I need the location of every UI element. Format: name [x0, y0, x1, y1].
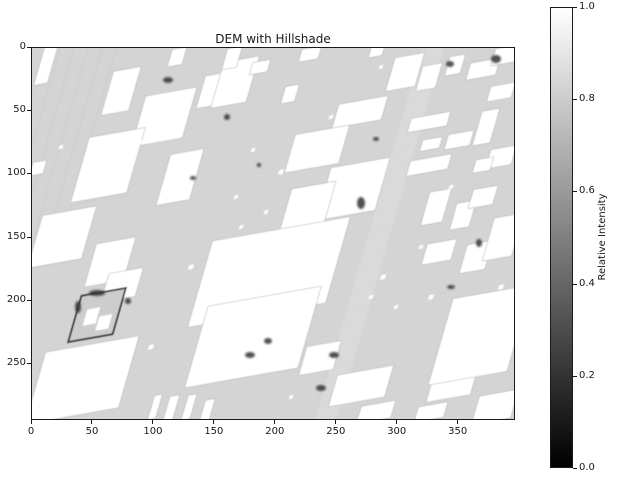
y-tick-label: 0 [0, 41, 26, 53]
y-tick-mark [27, 173, 31, 174]
x-tick-mark [152, 420, 153, 424]
y-tick-mark [27, 110, 31, 111]
hillshade-image [31, 47, 515, 420]
colorbar-tick-label: 0.0 [579, 462, 609, 474]
colorbar-tick-label: 0.8 [579, 93, 609, 105]
x-tick-mark [91, 420, 92, 424]
y-tick-label: 250 [0, 357, 26, 369]
colorbar-tick-mark [573, 468, 577, 469]
x-tick-mark [274, 420, 275, 424]
colorbar-tick-mark [573, 7, 577, 8]
x-tick-label: 300 [379, 426, 415, 438]
y-tick-mark [27, 47, 31, 48]
chart-title: DEM with Hillshade [31, 32, 515, 46]
x-tick-label: 0 [13, 426, 49, 438]
y-tick-mark [27, 237, 31, 238]
x-tick-label: 250 [318, 426, 354, 438]
x-tick-mark [457, 420, 458, 424]
figure: DEM with Hillshade 050100150200250300350… [0, 0, 618, 482]
y-tick-label: 150 [0, 231, 26, 243]
x-tick-label: 50 [74, 426, 110, 438]
y-tick-label: 200 [0, 294, 26, 306]
x-tick-mark [396, 420, 397, 424]
y-tick-mark [27, 300, 31, 301]
colorbar-tick-mark [573, 191, 577, 192]
y-tick-mark [27, 363, 31, 364]
x-tick-mark [335, 420, 336, 424]
x-tick-label: 200 [257, 426, 293, 438]
x-tick-label: 350 [440, 426, 476, 438]
colorbar-tick-label: 1.0 [579, 1, 609, 13]
colorbar-tick-mark [573, 284, 577, 285]
colorbar-tick-label: 0.2 [579, 370, 609, 382]
x-tick-label: 150 [196, 426, 232, 438]
colorbar-label: Relative Intensity [596, 177, 610, 297]
colorbar-tick-mark [573, 376, 577, 377]
x-tick-mark [213, 420, 214, 424]
y-tick-label: 100 [0, 167, 26, 179]
y-tick-label: 50 [0, 104, 26, 116]
x-tick-label: 100 [135, 426, 171, 438]
colorbar-gradient [550, 7, 573, 468]
colorbar-tick-mark [573, 99, 577, 100]
x-tick-mark [31, 420, 32, 424]
